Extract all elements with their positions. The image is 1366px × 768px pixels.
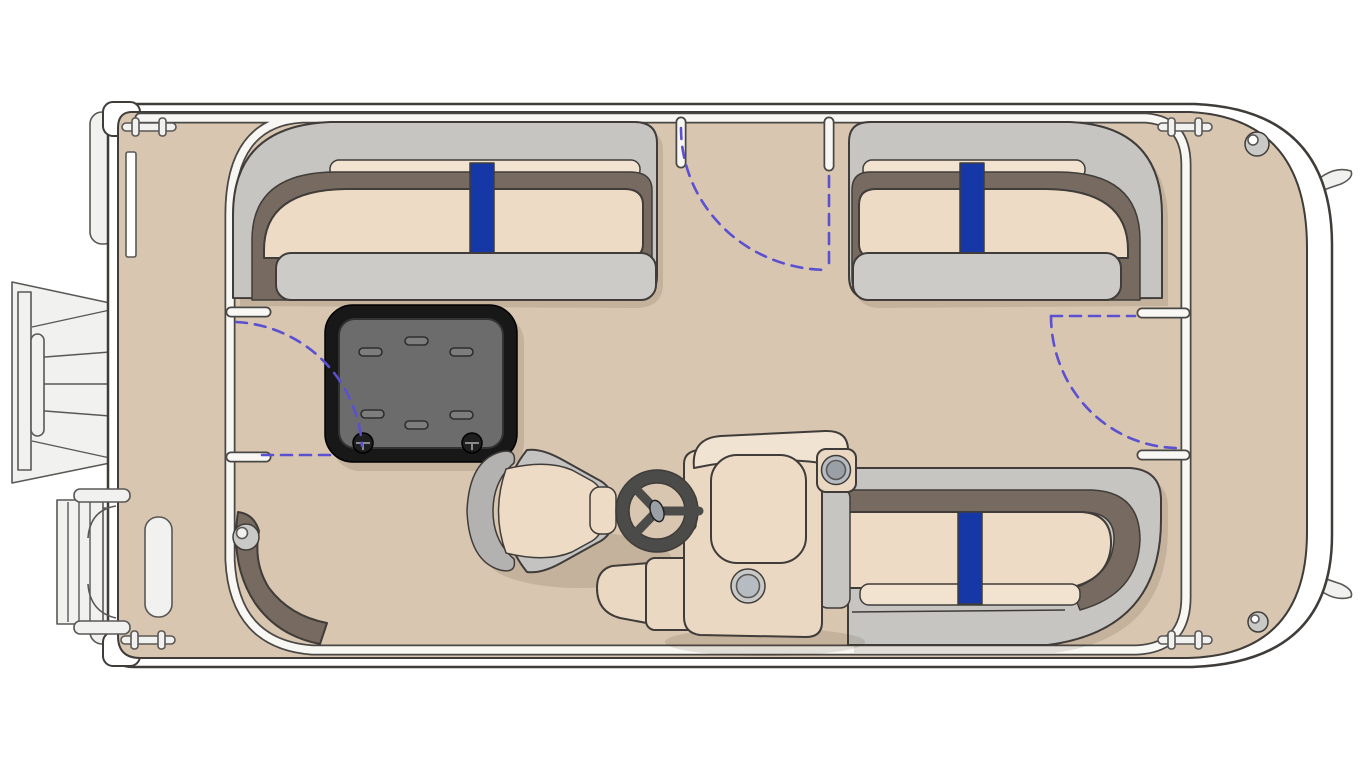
outboard-motor bbox=[12, 282, 110, 483]
bench-cushion bbox=[859, 189, 1128, 258]
floorplan-stage bbox=[0, 0, 1366, 768]
port-bow-lounge bbox=[849, 122, 1168, 308]
pontoon-floorplan-diagram bbox=[0, 0, 1366, 768]
console-dash-top bbox=[711, 455, 806, 563]
steering-wheel bbox=[616, 470, 699, 552]
console-speaker-cone bbox=[827, 461, 846, 480]
motor-mount-bar bbox=[18, 292, 31, 470]
bench-blue-stripe bbox=[960, 163, 984, 256]
ladder-bar-top bbox=[74, 489, 130, 502]
bench-seat-front bbox=[853, 253, 1121, 300]
transom-slot bbox=[126, 152, 136, 257]
bench-blue-stripe bbox=[470, 163, 494, 256]
starboard-bow-lounge bbox=[818, 468, 1168, 653]
stern-step-pad bbox=[145, 517, 172, 617]
chair-front-pad bbox=[590, 487, 616, 534]
chair-cushion bbox=[499, 464, 603, 558]
storage-hatch bbox=[325, 305, 524, 471]
cup-holder bbox=[737, 575, 760, 598]
bench-cushion bbox=[264, 189, 643, 258]
bench-blue-stripe bbox=[958, 512, 982, 604]
bow-light-port-lens bbox=[1248, 135, 1258, 145]
port-aft-lounge bbox=[233, 122, 663, 308]
motor-cowl bbox=[31, 334, 44, 436]
courtesy-light-lens bbox=[237, 528, 248, 539]
bench-seat-front bbox=[276, 253, 656, 300]
ladder-bar-bottom bbox=[74, 621, 130, 634]
bow-light-starboard-lens bbox=[1251, 615, 1259, 623]
